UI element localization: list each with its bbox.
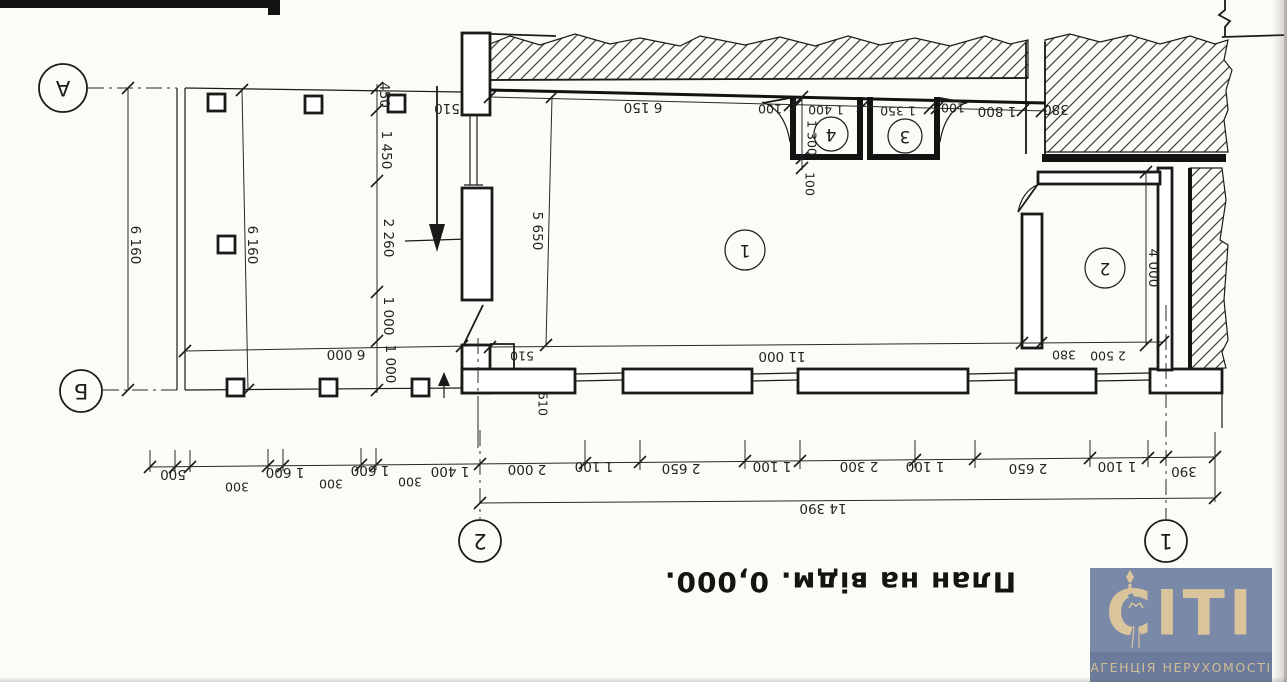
dim-label: 1 400 bbox=[808, 103, 844, 118]
dim-label: 14 390 bbox=[799, 500, 846, 516]
window-south-1 bbox=[575, 371, 623, 384]
door-leaf-west bbox=[464, 305, 483, 344]
dim-label: 390 bbox=[1171, 463, 1197, 479]
dim-label: 1 600 bbox=[351, 462, 390, 478]
statue-of-liberty-icon bbox=[1112, 570, 1148, 652]
cropped-drawing-fragment bbox=[0, 0, 280, 15]
dim-label: 300 bbox=[319, 477, 343, 492]
grid-bubble-b: Б bbox=[74, 379, 88, 403]
dim-label: 1 100 bbox=[906, 458, 945, 474]
grid-axes bbox=[88, 88, 1166, 519]
dim-label: 2 650 bbox=[662, 460, 701, 476]
dim-label: 2 500 bbox=[1090, 349, 1126, 364]
dim-label: 300 bbox=[398, 475, 422, 490]
window-south-3 bbox=[968, 371, 1016, 384]
dim-label: 2 300 bbox=[840, 458, 879, 474]
room-number-4: 4 bbox=[826, 124, 837, 144]
dim-label: 1 100 bbox=[1098, 458, 1137, 474]
scan-edge-shadow-bottom bbox=[0, 677, 1287, 682]
dim-label: 6 150 bbox=[624, 99, 663, 115]
dim-label: 100 bbox=[803, 172, 818, 196]
terrace bbox=[177, 86, 468, 398]
dim-label: 1 000 bbox=[380, 297, 396, 336]
dim-label: 1 300 bbox=[805, 120, 820, 156]
dim-label: 1 100 bbox=[575, 458, 614, 474]
dim-label: 380 bbox=[1043, 101, 1069, 117]
dim-label: 6 160 bbox=[127, 226, 143, 265]
window-south-4 bbox=[1096, 371, 1150, 384]
grid-bubble-a: А bbox=[55, 76, 70, 100]
room-number-2: 2 bbox=[1100, 258, 1111, 278]
room2-north-wall bbox=[1038, 172, 1160, 184]
dim-label: 6 160 bbox=[244, 226, 260, 265]
drawing-title: План на відм. 0,000. bbox=[664, 566, 1016, 599]
dim-label: 1 600 bbox=[266, 464, 305, 480]
dim-label: 5 650 bbox=[529, 212, 545, 251]
dim-label: 500 bbox=[160, 466, 186, 482]
logo-brand-area: CITI bbox=[1090, 568, 1272, 652]
dim-label: 510 bbox=[536, 392, 551, 416]
dim-label: 2 000 bbox=[508, 461, 547, 477]
dim-label: 510 bbox=[434, 100, 460, 116]
agency-watermark: CITI АГЕНЦІЯ НЕРУХОМОСТІ bbox=[1090, 568, 1272, 682]
dim-label: 1 400 bbox=[431, 463, 470, 479]
scanned-floor-plan-page: 510 6 150 100 1 400 1 350 100 1 800 380 … bbox=[0, 0, 1287, 682]
grid-bubble-1: 1 bbox=[1159, 529, 1172, 553]
grid-bubbles: А Б 2 1 bbox=[39, 64, 1187, 562]
entrance-arrow-small bbox=[438, 372, 450, 398]
door-room2 bbox=[1018, 184, 1038, 212]
dim-label: 1 800 bbox=[978, 103, 1017, 119]
dim-label: 1 100 bbox=[753, 458, 792, 474]
dim-label: 100 bbox=[941, 101, 965, 116]
dim-label: 6 000 bbox=[327, 346, 366, 362]
dim-label: 1 350 bbox=[880, 104, 916, 119]
dim-label: 4 000 bbox=[1145, 249, 1161, 288]
room-number-3: 3 bbox=[900, 126, 911, 146]
logo-tagline-text: АГЕНЦІЯ НЕРУХОМОСТІ bbox=[1090, 660, 1271, 675]
existing-wall-hatch-top bbox=[462, 33, 1028, 80]
room2-west-wall bbox=[1022, 214, 1042, 348]
dim-label: 11 000 bbox=[758, 348, 805, 364]
window-south-2 bbox=[752, 371, 798, 384]
dim-label: 510 bbox=[510, 349, 534, 364]
dim-label: 2 650 bbox=[1009, 460, 1048, 476]
room-number-1: 1 bbox=[740, 240, 751, 260]
dim-label: 1 450 bbox=[378, 131, 394, 170]
existing-wall-hatch-right bbox=[1190, 168, 1228, 370]
dim-label: 300 bbox=[225, 480, 249, 495]
dim-label: 380 bbox=[1052, 348, 1076, 363]
dim-label: 2 260 bbox=[380, 219, 396, 258]
grid-bubble-2: 2 bbox=[473, 529, 486, 553]
dim-label: 1 000 bbox=[382, 345, 398, 384]
dim-label: 100 bbox=[758, 102, 782, 117]
dim-label: 450 bbox=[376, 82, 392, 108]
existing-wall-hatch-corner bbox=[1026, 34, 1232, 158]
window-west bbox=[464, 115, 483, 185]
